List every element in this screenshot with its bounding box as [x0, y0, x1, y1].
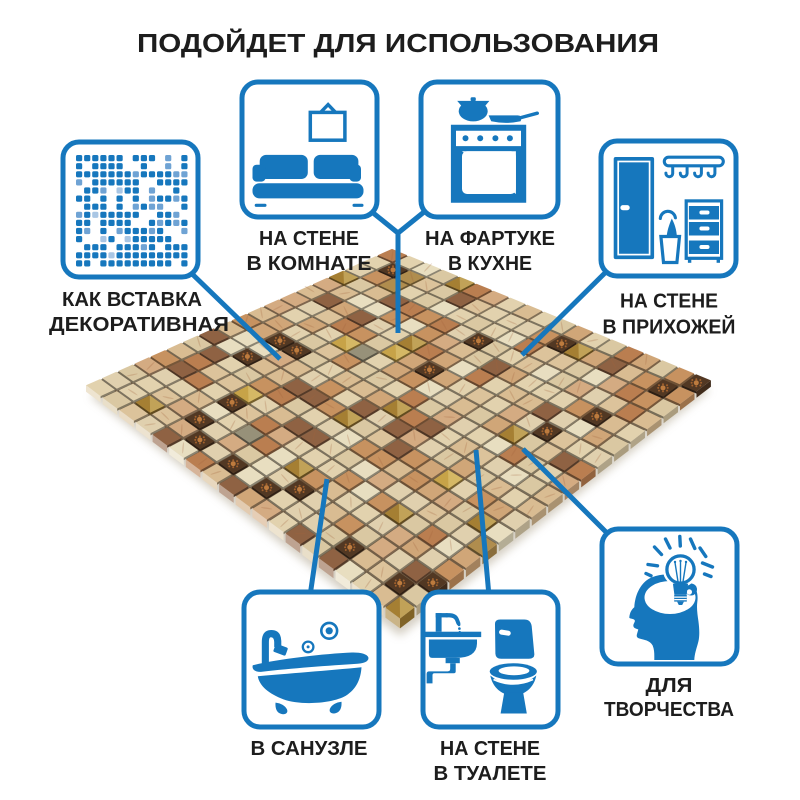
- svg-text:ДЕКОРАТИВНАЯ: ДЕКОРАТИВНАЯ: [49, 313, 229, 336]
- svg-text:ПОДОЙДЕТ ДЛЯ ИСПОЛЬЗОВАНИЯ: ПОДОЙДЕТ ДЛЯ ИСПОЛЬЗОВАНИЯ: [137, 28, 659, 58]
- svg-text:НА СТЕНЕ: НА СТЕНЕ: [620, 290, 718, 313]
- svg-text:В САНУЗЛЕ: В САНУЗЛЕ: [251, 737, 368, 760]
- svg-text:КАК ВСТАВКА: КАК ВСТАВКА: [62, 288, 202, 311]
- svg-text:ТВОРЧЕСТВА: ТВОРЧЕСТВА: [604, 698, 734, 721]
- svg-text:В КОМНАТЕ: В КОМНАТЕ: [247, 252, 372, 275]
- svg-text:НА ФАРТУКЕ: НА ФАРТУКЕ: [425, 227, 555, 250]
- svg-text:В ТУАЛЕТЕ: В ТУАЛЕТЕ: [434, 762, 547, 785]
- svg-text:НА СТЕНЕ: НА СТЕНЕ: [259, 227, 359, 250]
- svg-text:ДЛЯ: ДЛЯ: [646, 674, 693, 697]
- svg-text:В ПРИХОЖЕЙ: В ПРИХОЖЕЙ: [603, 315, 736, 339]
- svg-text:НА СТЕНЕ: НА СТЕНЕ: [440, 737, 540, 760]
- svg-text:В КУХНЕ: В КУХНЕ: [448, 252, 532, 275]
